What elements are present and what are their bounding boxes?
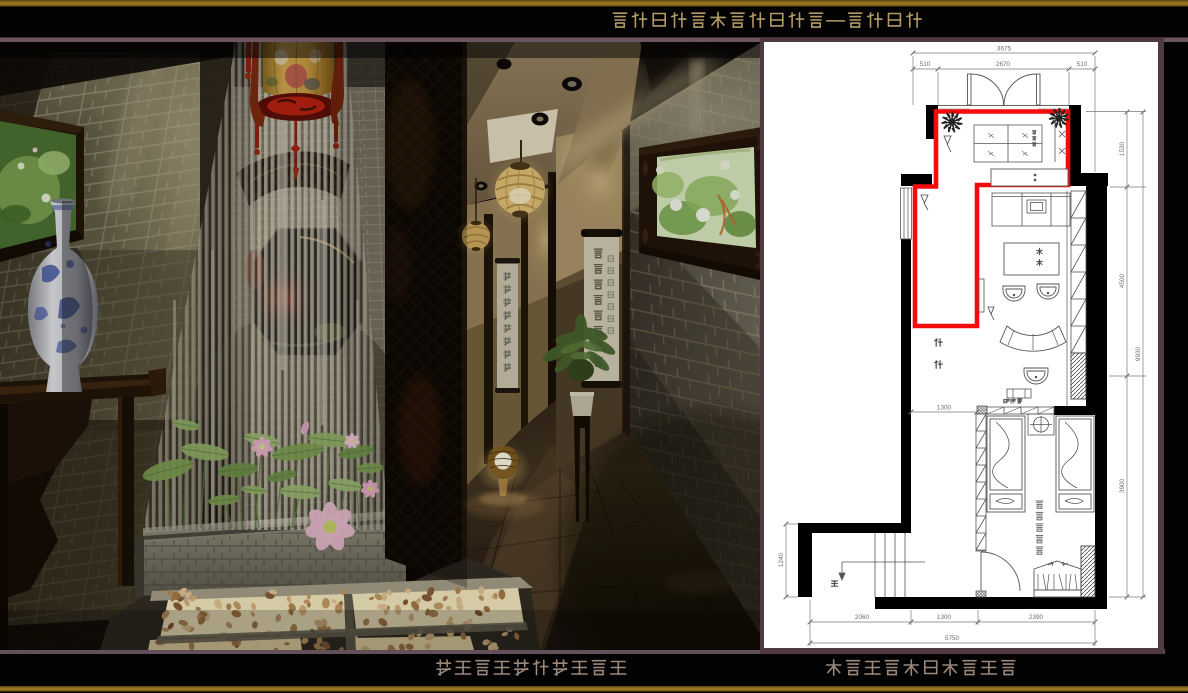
svg-text:510: 510	[920, 61, 931, 68]
svg-text:3900: 3900	[1119, 478, 1126, 493]
svg-text:1530: 1530	[1119, 141, 1126, 156]
svg-text:1300: 1300	[937, 405, 952, 412]
svg-text:9930: 9930	[1135, 346, 1142, 361]
svg-text:1300: 1300	[937, 614, 952, 621]
svg-text:5750: 5750	[945, 635, 960, 642]
svg-text:3675: 3675	[997, 46, 1012, 53]
svg-text:510: 510	[1077, 61, 1088, 68]
svg-text:2060: 2060	[855, 614, 870, 621]
svg-text:4500: 4500	[1119, 273, 1126, 288]
svg-text:2670: 2670	[996, 61, 1011, 68]
svg-text:2390: 2390	[1029, 614, 1044, 621]
svg-text:1240: 1240	[778, 552, 785, 567]
